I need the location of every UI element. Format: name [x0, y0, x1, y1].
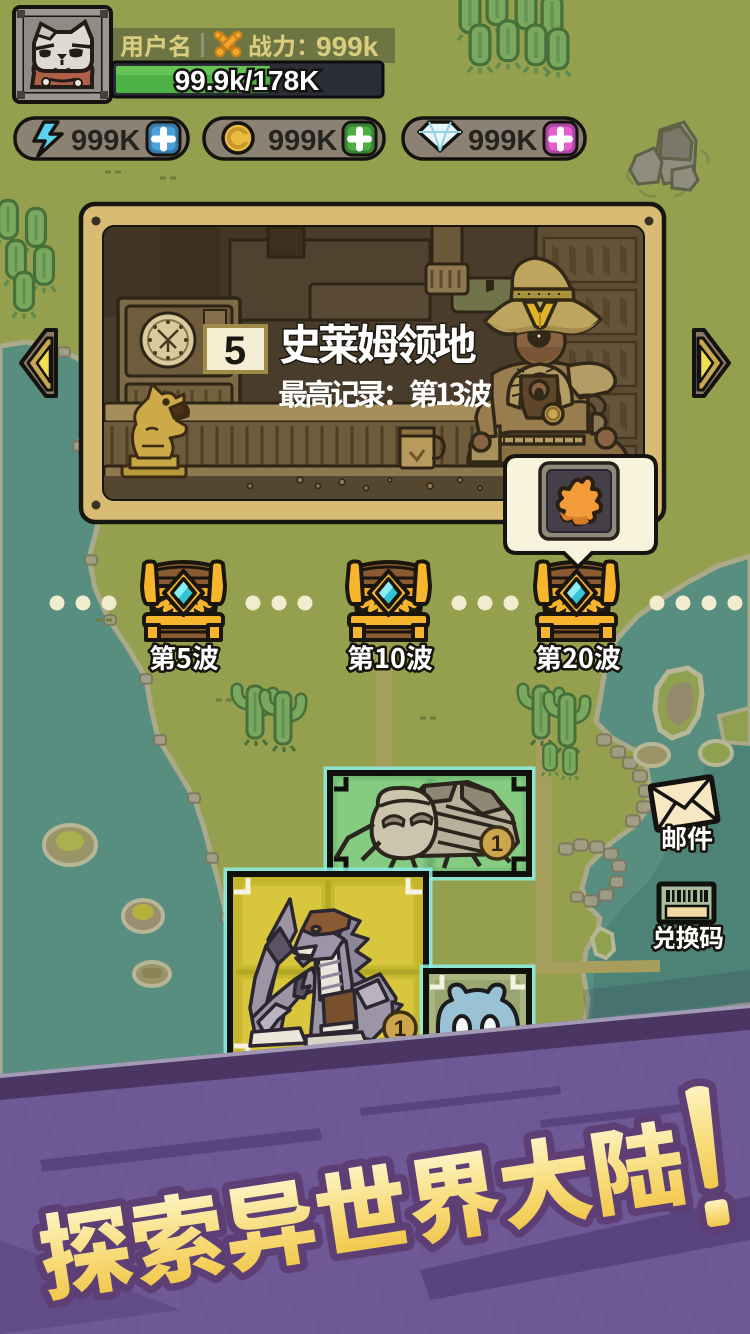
svg-text:99.9k/178K: 99.9k/178K	[175, 65, 320, 96]
svg-text:999K: 999K	[71, 125, 140, 157]
svg-text:999K: 999K	[268, 125, 337, 157]
svg-text:1: 1	[491, 831, 503, 856]
svg-text:5: 5	[224, 329, 246, 373]
svg-text:999K: 999K	[468, 125, 537, 157]
svg-text:999k: 999k	[316, 31, 379, 62]
